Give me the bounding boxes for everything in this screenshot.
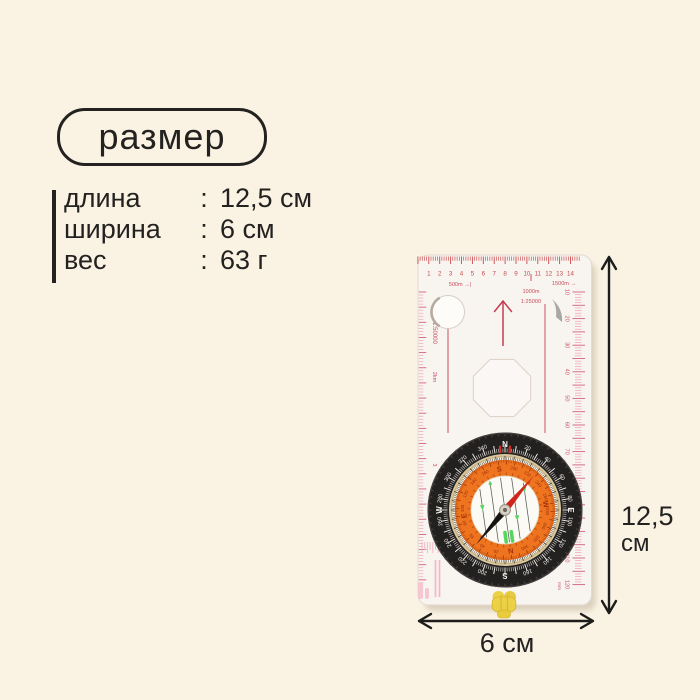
svg-text:2: 2 xyxy=(438,271,442,278)
svg-text:1:50000: 1:50000 xyxy=(431,322,437,344)
size-badge: размер xyxy=(57,108,267,166)
svg-text:6: 6 xyxy=(482,271,486,278)
svg-text:500m →|: 500m →| xyxy=(449,282,472,288)
svg-text:10: 10 xyxy=(523,271,530,278)
svg-text:13: 13 xyxy=(556,271,563,278)
size-badge-label: размер xyxy=(99,116,226,158)
svg-text:5: 5 xyxy=(471,271,475,278)
svg-text:14: 14 xyxy=(567,271,574,278)
svg-text:60: 60 xyxy=(564,422,570,428)
spec-divider xyxy=(52,190,56,283)
svg-text:1000m: 1000m xyxy=(522,289,539,295)
svg-text:1: 1 xyxy=(427,271,431,278)
svg-text:4: 4 xyxy=(460,271,464,278)
svg-text:E: E xyxy=(566,507,575,513)
svg-text:8: 8 xyxy=(503,271,507,278)
svg-text:mm: mm xyxy=(556,582,561,590)
spec-value: 63 г xyxy=(212,245,312,276)
compass-graphic: 1234567891011121314500m →|1000m1:2500015… xyxy=(405,245,605,645)
svg-text:9: 9 xyxy=(514,271,518,278)
svg-text:12: 12 xyxy=(545,271,552,278)
svg-text:100: 100 xyxy=(460,504,465,512)
svg-text:70: 70 xyxy=(564,448,570,454)
magnifier-lens xyxy=(431,296,464,329)
spec-row-length: длина:12,5 см xyxy=(64,183,312,214)
molded-octagon xyxy=(473,359,530,416)
svg-text:3: 3 xyxy=(449,271,453,278)
spec-colon: : xyxy=(196,245,212,276)
spec-colon: : xyxy=(196,214,212,245)
svg-text:280: 280 xyxy=(545,508,550,516)
height-value: 12,5 xyxy=(621,501,674,531)
width-dimension-label: 6 см xyxy=(412,628,602,659)
spec-label: вес xyxy=(64,245,196,276)
height-unit: см xyxy=(621,531,674,558)
svg-text:80: 80 xyxy=(566,495,573,502)
svg-text:7: 7 xyxy=(492,271,496,278)
svg-text:1:25000: 1:25000 xyxy=(521,299,541,305)
spec-value: 6 см xyxy=(212,214,312,245)
svg-text:40: 40 xyxy=(564,369,570,375)
svg-text:3: 3 xyxy=(431,464,437,467)
spec-label: длина xyxy=(64,183,196,214)
spec-value: 12,5 см xyxy=(212,183,312,214)
svg-text:11: 11 xyxy=(535,271,542,278)
spec-row-weight: вес:63 г xyxy=(64,245,312,276)
compass-dial: NESW204060801001201401602002202402602803… xyxy=(428,433,583,588)
svg-text:W: W xyxy=(435,506,444,514)
spec-list: длина:12,5 см ширина:6 см вес:63 г xyxy=(64,183,312,276)
svg-text:120: 120 xyxy=(564,580,570,589)
svg-text:50: 50 xyxy=(564,395,570,401)
spec-label: ширина xyxy=(64,214,196,245)
height-dimension-arrow xyxy=(594,246,626,626)
svg-text:20: 20 xyxy=(564,315,570,321)
svg-text:10: 10 xyxy=(564,289,570,295)
svg-text:N: N xyxy=(502,440,508,449)
spec-row-width: ширина:6 см xyxy=(64,214,312,245)
svg-text:30: 30 xyxy=(564,342,570,348)
svg-text:S: S xyxy=(502,571,508,580)
height-dimension-label: 12,5 см xyxy=(621,501,674,558)
svg-text:1500m →: 1500m → xyxy=(552,281,576,287)
spec-colon: : xyxy=(196,183,212,214)
svg-text:2km: 2km xyxy=(431,372,437,383)
